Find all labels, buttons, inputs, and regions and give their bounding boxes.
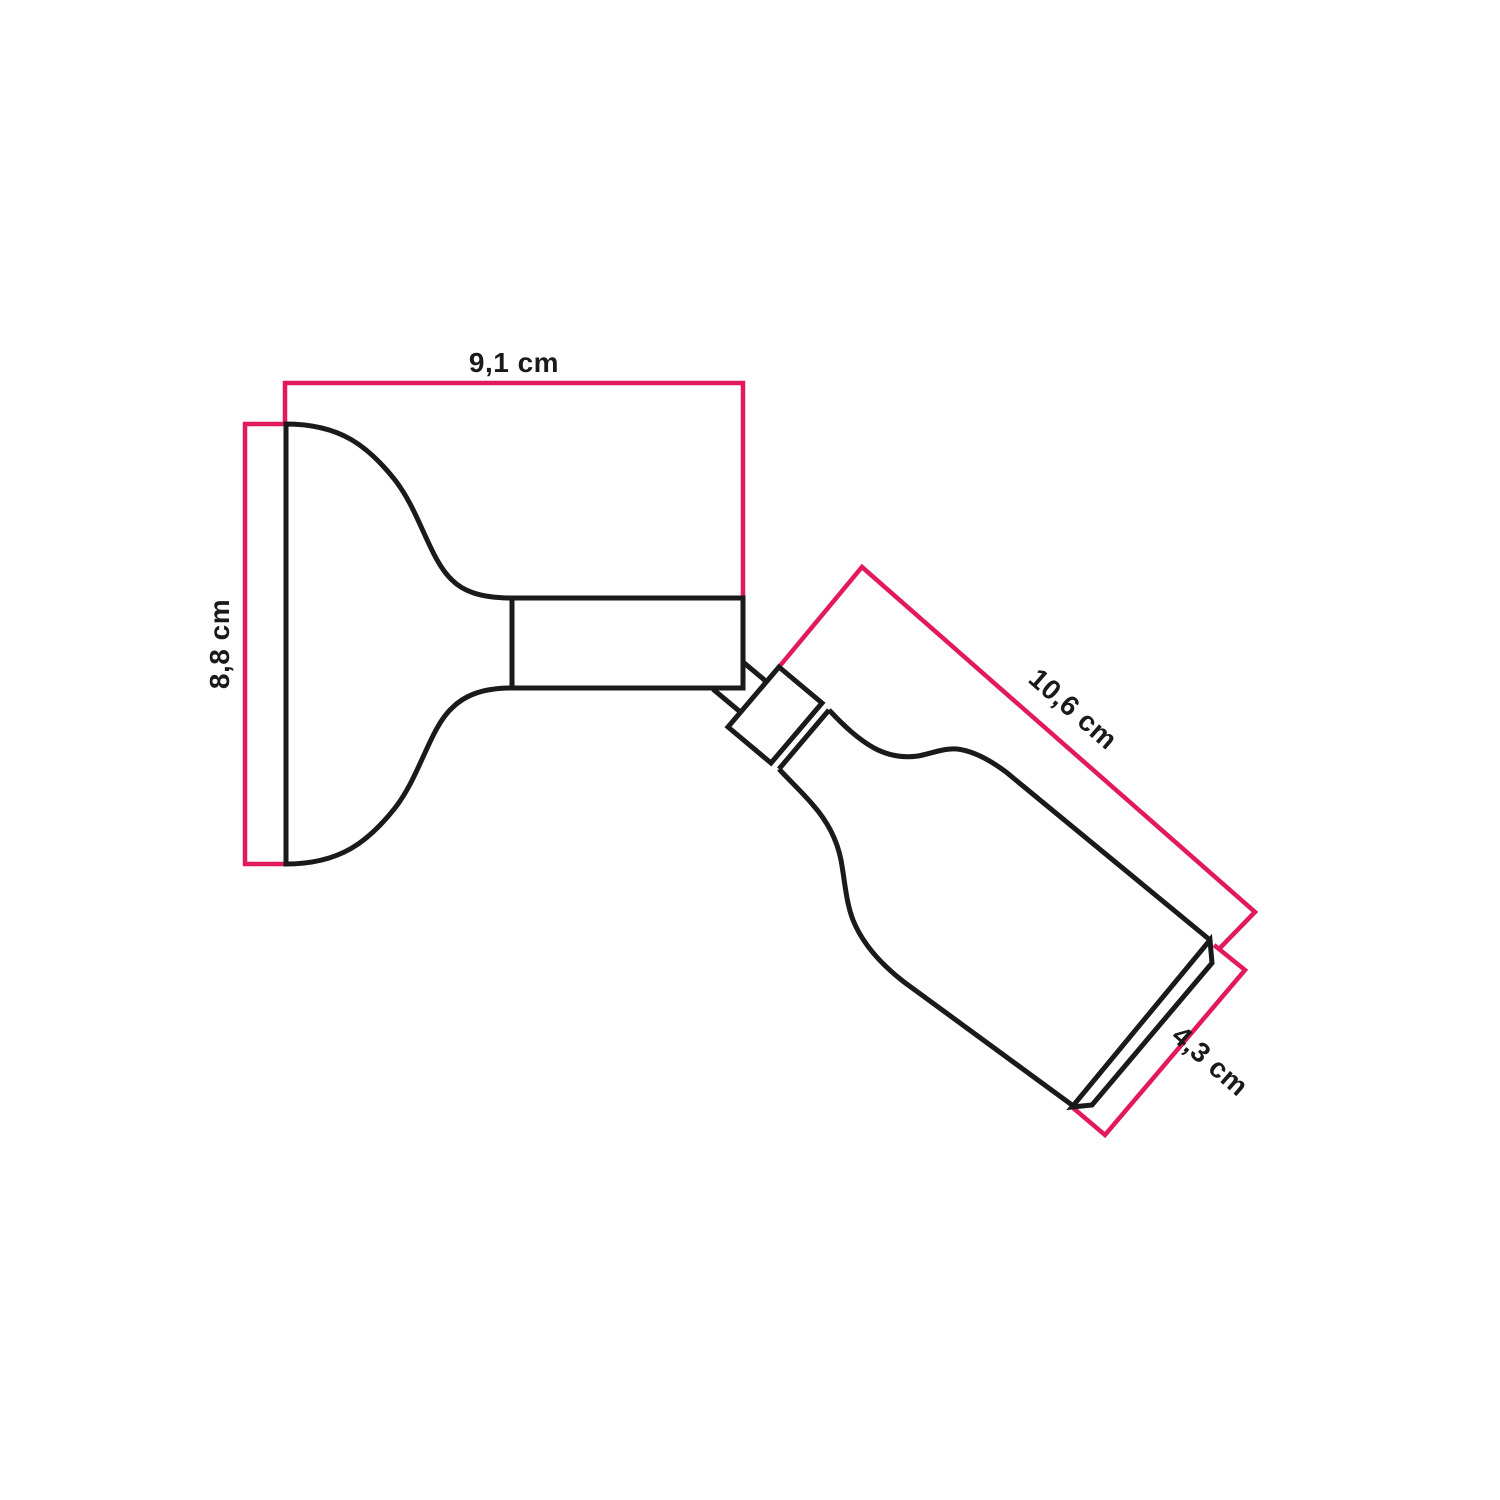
diameter-dimension-line xyxy=(1072,945,1245,1135)
ferrule-outline xyxy=(512,598,743,688)
length-dimension-label: 10,6 cm xyxy=(1023,662,1124,755)
dimension-diagram-page: 9,1 cm 8,8 cm 10,6 cm 4,3 cm xyxy=(0,0,1500,1500)
wall-plate-outline xyxy=(286,424,512,864)
width-dimension-line xyxy=(285,383,743,598)
height-dimension-label: 8,8 cm xyxy=(204,599,235,689)
dimension-lines-group xyxy=(245,383,1255,1135)
height-dimension-line xyxy=(245,424,285,864)
dimension-diagram: 9,1 cm 8,8 cm 10,6 cm 4,3 cm xyxy=(0,0,1500,1500)
diameter-dimension-label: 4,3 cm xyxy=(1166,1020,1254,1103)
holder-lower-outline xyxy=(779,769,1072,1105)
width-dimension-label: 9,1 cm xyxy=(469,347,559,378)
lamp-outline-group xyxy=(286,424,1212,1107)
length-dimension-line xyxy=(779,567,1255,949)
